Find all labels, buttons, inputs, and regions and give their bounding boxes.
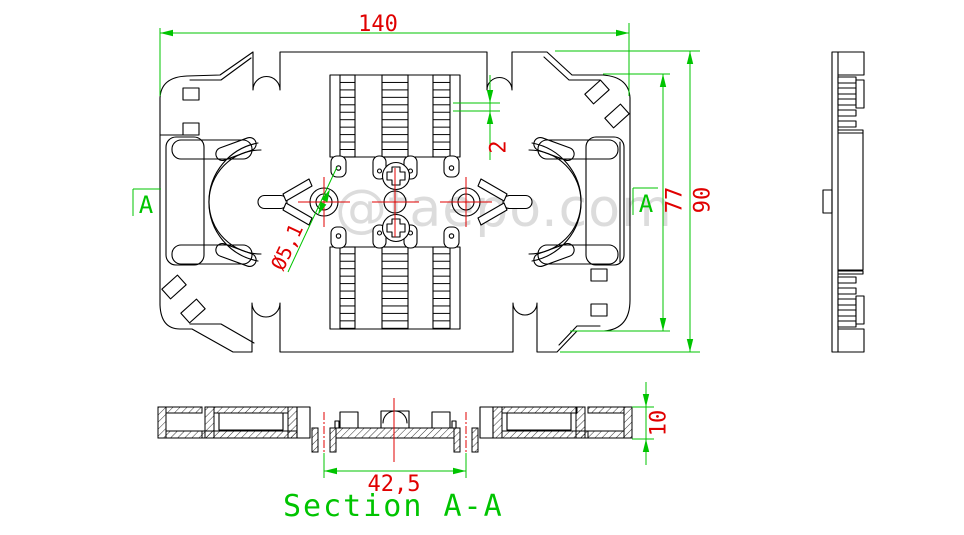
cad-drawing-canvas: @taepo.com bbox=[0, 0, 964, 535]
section-marker-left-label: A bbox=[139, 191, 154, 219]
hole-rect-bottom-left-1 bbox=[162, 275, 186, 299]
hole-rect-bottom-right-2 bbox=[591, 304, 607, 316]
section-marker-right-label: A bbox=[639, 190, 654, 218]
section-view bbox=[158, 398, 632, 462]
dim-comb-pitch: 2 bbox=[453, 75, 512, 160]
side-tab bbox=[823, 190, 832, 213]
dim-90-label: 90 bbox=[691, 187, 716, 214]
cross-boss-top bbox=[383, 163, 410, 190]
section-center-boss bbox=[381, 411, 409, 428]
side-comb-teeth-top bbox=[838, 77, 864, 127]
hole-rect-bottom-right-1 bbox=[591, 269, 607, 281]
hole-rect-bottom-left-2 bbox=[181, 299, 205, 323]
hole-rect-top-left-1 bbox=[183, 88, 199, 100]
hole-rect-top-left-2 bbox=[183, 123, 199, 135]
hole-rect-top-right-2 bbox=[605, 104, 629, 128]
retainer-arcs-left bbox=[209, 136, 261, 269]
dim-140-label: 140 bbox=[358, 12, 398, 37]
dim-dia-label: Ø5,1 bbox=[266, 220, 308, 274]
dim-77-label: 77 bbox=[663, 187, 688, 214]
section-block-right bbox=[432, 412, 450, 428]
cross-boss-bottom bbox=[383, 215, 410, 242]
side-comb-teeth-bottom bbox=[838, 277, 864, 327]
section-marker-left: A bbox=[133, 189, 161, 219]
splice-tray-drawing: @taepo.com bbox=[0, 0, 964, 535]
section-block-left bbox=[340, 412, 358, 428]
side-view bbox=[823, 52, 864, 352]
hole-rect-top-right-1 bbox=[585, 80, 609, 104]
section-title: Section A-A bbox=[283, 489, 504, 524]
dim-2-label: 2 bbox=[487, 140, 512, 153]
dim-10-label: 10 bbox=[647, 410, 672, 437]
dim-thickness: 10 bbox=[632, 382, 672, 465]
